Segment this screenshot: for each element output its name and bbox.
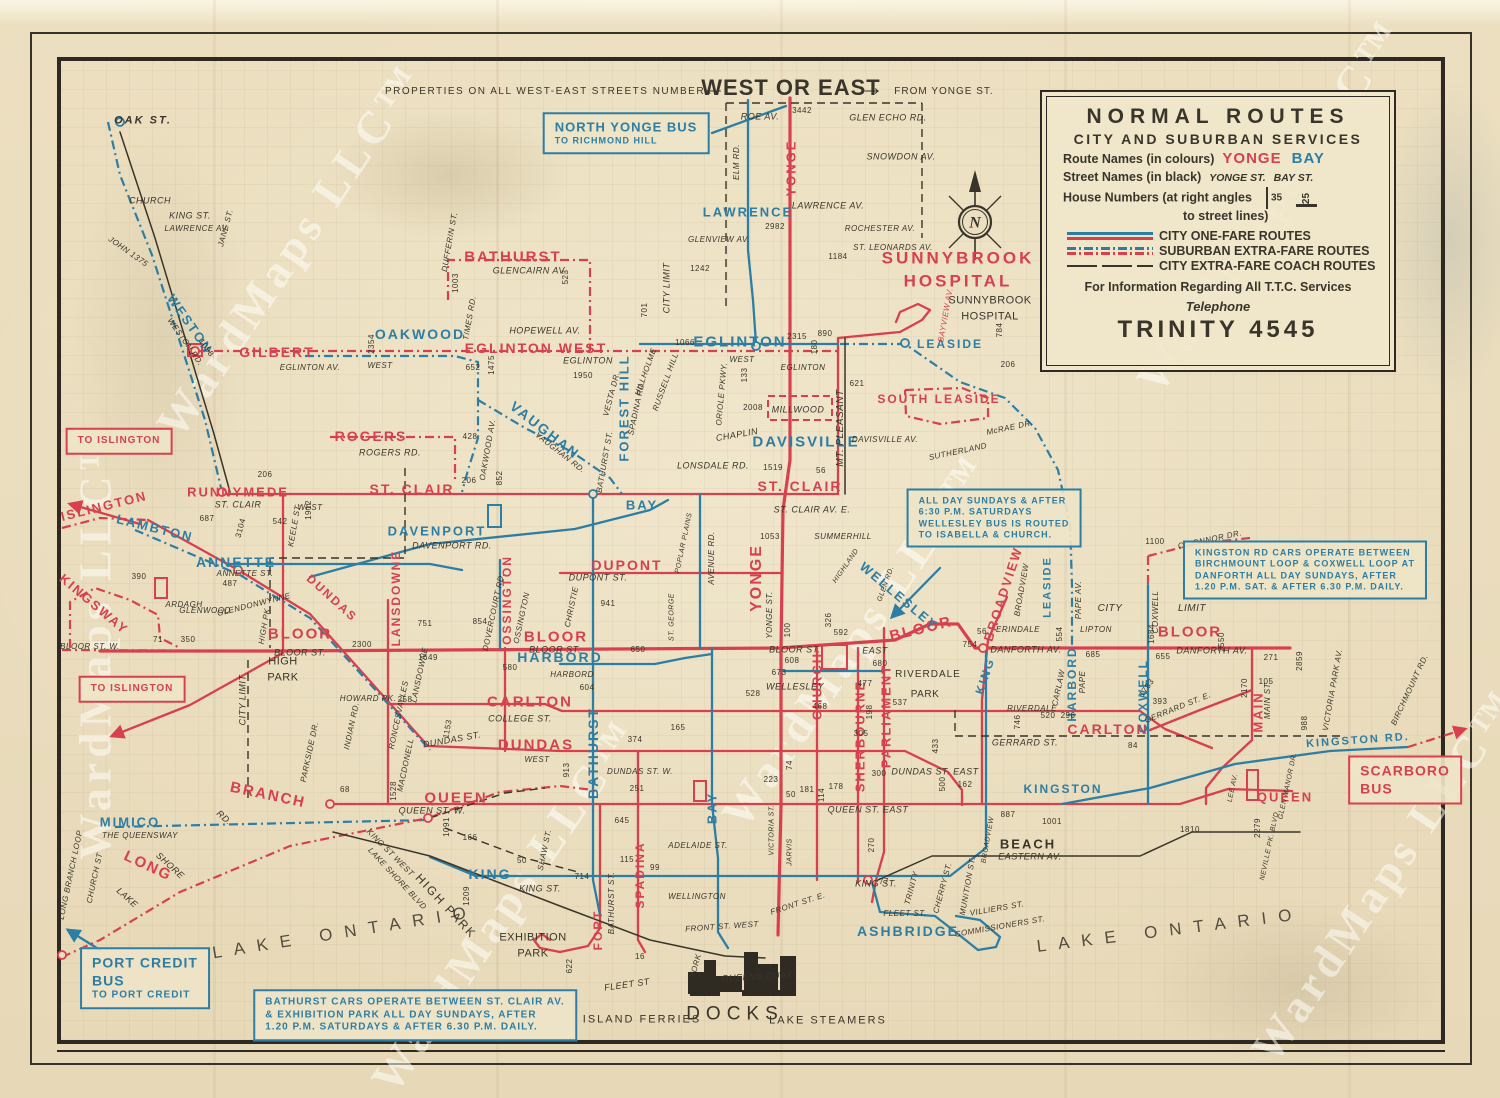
map-label: 2354 xyxy=(368,334,376,354)
map-label: 520 xyxy=(1041,712,1056,720)
map-label: 271 xyxy=(1264,654,1279,662)
note-box-line: WELLESLEY BUS IS ROUTED xyxy=(919,518,1070,529)
map-label: 56 xyxy=(977,628,987,636)
map-label: EASTERN AV. xyxy=(998,853,1062,862)
map-label: 2008 xyxy=(743,404,763,412)
kingston-rd-note-box: KINGSTON RD CARS OPERATE BETWEENBIRCHMOU… xyxy=(1183,541,1427,600)
legend-house-numbers-row: House Numbers (at right angles3525 to st… xyxy=(1063,187,1383,223)
map-label: DANFORTH AV. xyxy=(990,646,1061,655)
map-label: 206 xyxy=(1001,361,1016,369)
legend-box: NORMAL ROUTES CITY AND SUBURBAN SERVICES… xyxy=(1040,90,1396,372)
map-label: HOWARD PK. xyxy=(340,695,396,703)
map-label: OAK ST. xyxy=(114,116,172,127)
map-label: 133 xyxy=(741,368,749,383)
note-box-line: NORTH YONGE BUS xyxy=(555,119,698,135)
map-label: PARK xyxy=(517,949,548,960)
map-label: 468 xyxy=(813,703,828,711)
legend-inner-frame: NORMAL ROUTES CITY AND SUBURBAN SERVICES… xyxy=(1046,96,1390,366)
coach-route-swatch xyxy=(1067,261,1153,272)
city-one-fare-row: CITY ONE-FARE ROUTES xyxy=(1067,229,1383,243)
map-label: LONSDALE RD. xyxy=(677,462,749,471)
map-label: 701 xyxy=(641,303,649,318)
map-label: BAY xyxy=(706,792,719,824)
note-box-line: BUS xyxy=(1360,780,1450,798)
map-label: 913 xyxy=(563,763,571,778)
map-label: THE QUEENSWAY xyxy=(102,832,178,840)
map-label: BLOOR ST. xyxy=(529,646,581,655)
note-box-line: TO PORT CREDIT xyxy=(92,989,198,1002)
suburban-extra-fare-swatch xyxy=(1067,246,1153,257)
map-label: 165 xyxy=(671,724,686,732)
map-label: SUNNYBROOK xyxy=(882,250,1035,267)
map-label: YONGE xyxy=(749,544,765,612)
map-label: ROE AV. xyxy=(741,113,780,122)
map-label: 537 xyxy=(893,699,908,707)
map-label: 852 xyxy=(496,471,504,486)
map-label: CARLTON xyxy=(487,695,573,710)
legend-subtitle: CITY AND SUBURBAN SERVICES xyxy=(1053,131,1383,147)
street-red-example: YONGE ST. xyxy=(1209,172,1265,184)
route-line xyxy=(1206,648,1252,804)
map-label: DUPONT xyxy=(591,558,662,572)
map-label: LAWRENCE AV. xyxy=(165,225,230,233)
map-label: 655 xyxy=(1156,653,1171,661)
map-label: 198 xyxy=(866,705,874,720)
map-label: FORT xyxy=(592,910,604,951)
map-label: 1810 xyxy=(1180,826,1200,834)
map-label: 251 xyxy=(630,785,645,793)
note-box-line: DANFORTH ALL DAY SUNDAYS, AFTER xyxy=(1195,570,1415,581)
map-label: BLOOR ST. W. xyxy=(60,643,120,651)
map-label: 751 xyxy=(418,620,433,628)
map-label: 305 xyxy=(854,730,869,738)
map-label: HIGH xyxy=(268,657,298,668)
to-islington-north-box: TO ISLINGTON xyxy=(66,428,173,455)
map-label: 2300 xyxy=(352,641,372,649)
legend-title: NORMAL ROUTES xyxy=(1053,105,1383,129)
city-one-fare-label: CITY ONE-FARE ROUTES xyxy=(1159,229,1311,243)
note-box-line: & EXHIBITION PARK ALL DAY SUNDAYS, AFTER xyxy=(265,1009,565,1022)
map-label: WEST xyxy=(524,756,549,764)
map-label: LANSDOWNE xyxy=(390,550,402,647)
note-box-line: TO RICHMOND HILL xyxy=(555,136,698,147)
map-label: 1003 xyxy=(452,273,460,293)
house-number-horizontal-bar: 25 xyxy=(1296,190,1317,207)
map-label: KINGSTON xyxy=(1023,783,1102,795)
map-label: DUNDAS ST. EAST xyxy=(891,768,978,777)
map-label: ST. GEORGE xyxy=(669,593,676,641)
map-label: MT. PLEASANT xyxy=(836,389,846,466)
map-label: ASHBRIDGE xyxy=(857,924,959,938)
map-label: 746 xyxy=(1014,715,1022,730)
map-label: CHURCH xyxy=(129,197,171,206)
note-box-line: BUS xyxy=(92,972,198,990)
map-label: BLOOR ST. xyxy=(769,646,821,655)
map-label: DUNDAS xyxy=(498,738,574,753)
map-label: 988 xyxy=(1301,716,1309,731)
map-label: 650 xyxy=(631,646,646,654)
note-box-line: TO ISABELLA & CHURCH. xyxy=(919,529,1070,540)
map-label: 270 xyxy=(868,838,876,853)
map-label: 180 xyxy=(811,340,819,355)
map-label: 374 xyxy=(628,736,643,744)
map-label: PARLIAMENT xyxy=(880,664,893,768)
map-label: 2859 xyxy=(1296,651,1304,671)
map-label: DAVENPORT RD. xyxy=(412,542,492,551)
map-label: 115 xyxy=(620,856,634,864)
terminal-circle xyxy=(58,951,66,959)
map-label: 1209 xyxy=(463,886,471,906)
map-label: 428 xyxy=(463,433,478,441)
map-label: LIPTON xyxy=(1080,626,1112,634)
map-label: 1242 xyxy=(690,265,710,273)
map-label: BLOOR xyxy=(524,630,588,645)
map-label: YONGE xyxy=(785,140,798,197)
map-label: ST. CLAIR xyxy=(370,482,455,496)
map-label: 1528 xyxy=(390,781,398,801)
map-label: 105 xyxy=(1259,678,1274,686)
map-label: 162 xyxy=(958,781,973,789)
terminal-circle xyxy=(979,644,987,652)
map-label: 166 xyxy=(463,834,478,842)
map-label: PARK xyxy=(911,690,940,700)
terminal-loop xyxy=(155,578,167,598)
map-label: WEST xyxy=(729,356,754,364)
map-label: LIMIT xyxy=(1178,604,1206,614)
map-label: ISLAND FERRIES xyxy=(583,1015,701,1026)
map-label: AVENUE RD. xyxy=(708,531,716,584)
map-label: 673 xyxy=(772,669,787,677)
map-label: WELLESLEY xyxy=(766,683,824,692)
map-label: ROCHESTER AV. xyxy=(845,225,916,233)
suburban-extra-fare-label: SUBURBAN EXTRA-FARE ROUTES xyxy=(1159,244,1369,258)
map-label: LAWRENCE AV. xyxy=(792,202,864,211)
legend-info-line: For Information Regarding All T.T.C. Ser… xyxy=(1053,280,1383,294)
map-label: 477 xyxy=(858,680,873,688)
map-label: 714 xyxy=(575,873,590,881)
terminal-circle xyxy=(901,339,909,347)
map-label: SOUTH LEASIDE xyxy=(877,393,1000,405)
map-label: 592 xyxy=(834,629,849,637)
terminal-loop xyxy=(822,645,847,669)
note-box-line: SCARBORO xyxy=(1360,763,1450,781)
map-label: 580 xyxy=(503,664,518,672)
map-label: 100 xyxy=(784,623,792,638)
map-label: KING ST. xyxy=(519,885,561,894)
bathurst-note-box: BATHURST CARS OPERATE BETWEEN ST. CLAIR … xyxy=(253,989,577,1041)
map-label: 74 xyxy=(786,760,794,770)
map-label: → xyxy=(860,76,885,100)
map-label: ST. LEONARDS AV. xyxy=(853,244,933,252)
map-label: COLLEGE ST. xyxy=(488,715,552,724)
map-label: EGLINTON AV. xyxy=(280,364,341,372)
map-label: 1649 xyxy=(418,654,438,662)
route-names-label: Route Names (in colours) xyxy=(1063,152,1214,166)
map-label: 685 xyxy=(1086,651,1101,659)
map-label: 71 xyxy=(153,636,163,644)
map-label: LAKE STEAMERS xyxy=(769,1016,887,1027)
legend-telephone-label: Telephone xyxy=(1053,299,1383,314)
map-label: ANNETTE xyxy=(196,555,276,569)
map-label: GERRARD ST. xyxy=(992,739,1058,748)
map-label: 2170 xyxy=(1241,678,1249,698)
map-label: 1684 xyxy=(1148,624,1156,644)
map-label: CITY LIMIT xyxy=(663,263,672,314)
map-label: EGLINTON WEST xyxy=(465,341,607,355)
map-label: GLENVIEW AV. xyxy=(688,236,750,244)
route-line xyxy=(115,820,428,827)
map-label: BEACH xyxy=(1000,838,1056,851)
map-label: 890 xyxy=(818,330,833,338)
map-label: 784 xyxy=(996,323,1004,338)
map-label: ST. CLAIR xyxy=(758,479,843,493)
map-label: ST. CLAIR AV. E. xyxy=(774,506,851,515)
legend-street-names-row: Street Names (in black)YONGE ST.BAY ST. xyxy=(1063,170,1383,184)
map-label: 2315 xyxy=(787,333,807,341)
map-label: 1184 xyxy=(828,253,847,261)
map-label: SNOWDON AV. xyxy=(866,153,935,162)
map-label: 300 xyxy=(872,770,887,778)
map-label: 16 xyxy=(635,953,645,961)
map-label: ROGERS xyxy=(335,429,408,443)
map-label: 68 xyxy=(340,786,350,794)
map-label: ROGERS RD. xyxy=(359,449,421,458)
map-label: CITY LIMIT xyxy=(239,675,248,726)
note-box-line: BIRCHMOUNT LOOP & COXWELL LOOP AT xyxy=(1195,559,1415,570)
map-label: QUEEN xyxy=(424,791,487,806)
map-label: ELM RD. xyxy=(733,144,741,180)
map-label: 206 xyxy=(258,471,273,479)
map-label: BATHURST xyxy=(586,707,600,799)
map-label: DAVISVILLE AV. xyxy=(852,436,918,444)
map-label: 56 xyxy=(816,467,826,475)
map-label: 523 xyxy=(562,270,570,285)
map-label: 621 xyxy=(850,380,865,388)
map-label: HARBORD xyxy=(550,671,594,679)
map-label: 1519 xyxy=(763,464,783,472)
terminal-loop xyxy=(488,505,501,527)
map-label: DUPONT ST. xyxy=(569,574,628,583)
map-label: 604 xyxy=(580,684,595,692)
map-label: ADELAIDE ST. xyxy=(668,842,728,850)
map-label: 1100 xyxy=(1145,538,1164,546)
route-line xyxy=(305,356,478,492)
map-label: ST. CLAIR xyxy=(215,501,262,510)
dock-block xyxy=(704,960,716,994)
map-label: 77 xyxy=(879,878,889,886)
map-label: FROM YONGE ST. xyxy=(894,87,993,97)
street-names-label: Street Names (in black) xyxy=(1063,170,1201,184)
coach-route-row: CITY EXTRA-FARE COACH ROUTES xyxy=(1067,259,1383,273)
map-label: 887 xyxy=(1001,811,1016,819)
map-label: WEST xyxy=(367,362,392,370)
map-label: 50 xyxy=(786,791,796,799)
route-blue-example: BAY xyxy=(1292,150,1325,167)
svg-text:N: N xyxy=(968,215,982,232)
map-label: PARK xyxy=(267,673,298,684)
map-label: ERINDALE xyxy=(996,626,1040,634)
note-box-line: PORT CREDIT xyxy=(92,954,198,972)
to-islington-south-box: TO ISLINGTON xyxy=(79,676,186,703)
map-label: 393 xyxy=(1153,698,1168,706)
legend-phone-number: TRINITY 4545 xyxy=(1053,316,1383,344)
map-label: 50 xyxy=(517,857,527,865)
map-label: GLEN ECHO RD. xyxy=(849,114,927,123)
wellesley-note-box: ALL DAY SUNDAYS & AFTER6:30 P.M. SATURDA… xyxy=(907,489,1082,548)
note-box-line: TO ISLINGTON xyxy=(91,683,174,696)
suburban-extra-fare-row: SUBURBAN EXTRA-FARE ROUTES xyxy=(1067,244,1383,258)
street-blue-example: BAY ST. xyxy=(1274,172,1314,184)
map-label: 1001 xyxy=(1042,818,1062,826)
map-label: 1066 xyxy=(675,339,695,347)
map-label: LEASIDE xyxy=(917,338,983,350)
map-label: SPADINA xyxy=(634,841,646,908)
map-label: 114 xyxy=(818,788,826,802)
map-label: 433 xyxy=(932,739,940,754)
map-label: 326 xyxy=(825,613,833,628)
coach-route-label: CITY EXTRA-FARE COACH ROUTES xyxy=(1159,259,1375,273)
map-label: 680 xyxy=(873,660,888,668)
compass-rose-icon: N xyxy=(949,170,1001,260)
legend-route-names-row: Route Names (in colours)YONGEBAY xyxy=(1063,150,1383,167)
map-label: 542 xyxy=(273,518,288,526)
map-label: MAIN ST. xyxy=(1264,681,1272,719)
note-box-line: BATHURST CARS OPERATE BETWEEN ST. CLAIR … xyxy=(265,996,565,1009)
house-numbers-label: House Numbers (at right angles xyxy=(1063,190,1252,204)
map-label: LEASIDE xyxy=(1043,556,1054,618)
note-box-line: TO ISLINGTON xyxy=(78,435,161,448)
map-label: VICTORIA ST. xyxy=(769,805,776,856)
note-box-line: 6:30 P.M. SATURDAYS xyxy=(919,507,1070,518)
map-page: WardMaps LLC™WardMaps LLC™WardMaps LLC™W… xyxy=(0,0,1500,1098)
map-label: HOPEWELL AV. xyxy=(509,327,580,336)
map-label: 1950 xyxy=(573,372,593,380)
map-label: 528 xyxy=(746,690,761,698)
map-label: FOREST HILL xyxy=(618,354,631,461)
map-label: 84 xyxy=(1128,742,1138,750)
route-line xyxy=(1408,729,1465,747)
note-box-line: 1.20 P.M. SAT. & AFTER 6.30 P.M. DAILY. xyxy=(1195,581,1415,592)
map-label: 652 xyxy=(466,364,481,372)
map-label: RIVERDALE xyxy=(895,670,961,680)
map-label: JARVIS xyxy=(787,838,794,865)
map-label: DUNDAS ST. W. xyxy=(607,768,673,776)
map-label: DANFORTH AV. xyxy=(1176,647,1247,656)
map-label: OAKWOOD xyxy=(375,327,465,341)
map-label: 223 xyxy=(764,776,779,784)
map-label: FLEET ST. xyxy=(883,910,926,918)
note-box-line: KINGSTON RD CARS OPERATE BETWEEN xyxy=(1195,548,1415,559)
map-label: 487 xyxy=(223,580,238,588)
map-label: BLOOR xyxy=(1158,625,1222,640)
map-label: 350 xyxy=(181,636,196,644)
map-label: SUNNYBROOK xyxy=(948,296,1031,307)
house-number-25: 25 xyxy=(1301,192,1312,203)
map-label: PROPERTIES ON ALL WEST-EAST STREETS NUMB… xyxy=(385,87,705,97)
map-label: BLOOR ST. xyxy=(274,649,326,658)
map-label: QUEEN ST. EAST xyxy=(828,806,909,815)
map-label: PAPE xyxy=(1079,671,1087,694)
map-label: DAVENPORT xyxy=(388,525,487,538)
map-label: EGLINTON xyxy=(563,357,613,366)
map-label: BATHURST xyxy=(464,250,561,265)
map-label: KING xyxy=(469,867,512,881)
note-box-line: 1.20 P.M. SATURDAYS & AFTER 6.30 P.M. DA… xyxy=(265,1021,565,1034)
port-credit-bus-box: PORT CREDITBUSTO PORT CREDIT xyxy=(80,947,210,1009)
map-label: 645 xyxy=(615,817,630,825)
dock-block xyxy=(690,990,720,996)
map-label: 181 xyxy=(800,786,815,794)
map-label: OSSINGTON xyxy=(501,555,513,645)
map-label: 3442 xyxy=(792,107,812,115)
map-label: 1053 xyxy=(760,533,780,541)
house-number-35: 35 xyxy=(1271,193,1282,204)
map-label: 1912 xyxy=(305,500,313,520)
map-label: QUEEN ST. W. xyxy=(399,807,466,816)
map-label: 854 xyxy=(473,618,488,626)
map-label: 2982 xyxy=(765,223,785,231)
map-label: RUNNYMEDE xyxy=(187,486,289,499)
map-label: 754 xyxy=(963,641,978,649)
map-label: HOSPITAL xyxy=(961,312,1019,323)
route-red-example: YONGE xyxy=(1222,150,1281,167)
map-label: 554 xyxy=(1056,627,1064,642)
map-label: LAWRENCE xyxy=(703,206,793,219)
map-label: BLOOR xyxy=(268,627,332,642)
map-label: KING ST. xyxy=(169,212,211,221)
map-label: 941 xyxy=(601,600,616,608)
map-label: BAY xyxy=(626,499,658,512)
map-label: 687 xyxy=(200,515,215,523)
map-label: EGLINTON xyxy=(781,364,826,372)
map-label: 500 xyxy=(939,777,947,792)
map-label: EGLINTON xyxy=(693,335,786,350)
map-label: KING ST. xyxy=(855,880,897,889)
north-yonge-bus-box: NORTH YONGE BUSTO RICHMOND HILL xyxy=(543,112,710,154)
map-label: 1091 xyxy=(443,817,451,837)
map-label: MILLWOOD xyxy=(772,406,825,415)
map-label: 2550 xyxy=(1218,632,1226,652)
note-box-line: ALL DAY SUNDAYS & AFTER xyxy=(919,496,1070,507)
map-label: 258 xyxy=(398,696,413,704)
map-label: EXHIBITION xyxy=(499,933,566,944)
map-label: EAST xyxy=(862,647,888,656)
map-label: HOSPITAL xyxy=(904,273,1013,290)
house-numbers-label-2: to street lines) xyxy=(1183,209,1268,223)
map-label: GLENCAIRN AV. xyxy=(493,267,568,276)
map-label: 1475 xyxy=(488,355,496,375)
map-label: MIMICO xyxy=(100,816,160,829)
map-label: CITY xyxy=(1098,604,1123,614)
map-label: 206 xyxy=(462,477,477,485)
map-label: ANNETTE ST. xyxy=(217,570,274,578)
map-label: 390 xyxy=(132,573,147,581)
map-label: GILBERT xyxy=(239,345,314,359)
scarboro-bus-box: SCARBOROBUS xyxy=(1348,756,1462,805)
map-label: PAPE AV. xyxy=(1075,581,1083,620)
city-one-fare-swatch xyxy=(1067,231,1153,242)
dock-block xyxy=(742,990,796,996)
map-label: 622 xyxy=(566,959,574,974)
house-number-vertical-bar xyxy=(1266,187,1268,209)
map-label: 99 xyxy=(650,864,660,872)
map-label: WELLINGTON xyxy=(668,893,726,901)
map-label: 178 xyxy=(829,783,844,791)
legend-line-key: CITY ONE-FARE ROUTES SUBURBAN EXTRA-FARE… xyxy=(1067,229,1383,273)
map-label: BATHURST ST. xyxy=(608,872,616,934)
route-line xyxy=(748,100,756,344)
map-label: 2279 xyxy=(1254,818,1262,838)
